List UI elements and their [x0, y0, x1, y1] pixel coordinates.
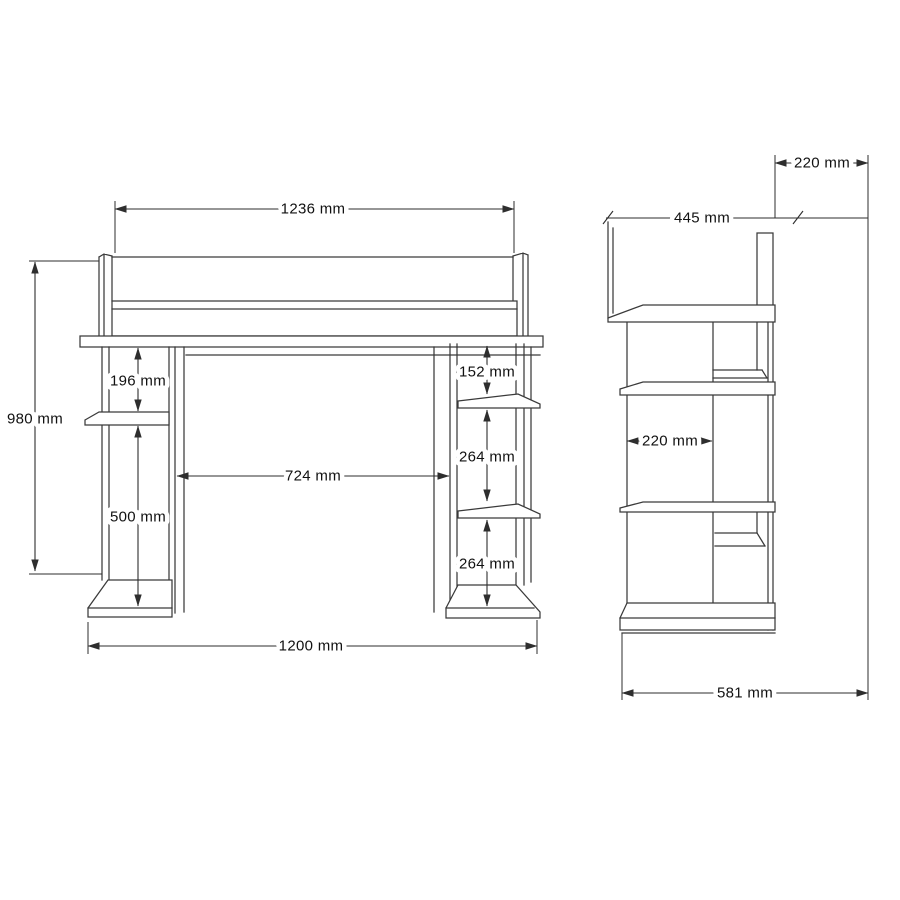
front-right-pedestal-shelf-1: [458, 394, 540, 408]
dim-right-gap-upper: 152 mm: [459, 346, 515, 394]
side-back-compartment-2: [715, 533, 765, 546]
dim-label-right-gap-upper: 152 mm: [459, 364, 515, 381]
dim-label-right-gap-middle: 264 mm: [459, 449, 515, 466]
dim-label-right-gap-lower: 264 mm: [459, 556, 515, 573]
dim-label-top-offset: 220 mm: [794, 155, 850, 172]
front-right-pedestal-panels: [434, 344, 531, 617]
dim-label-left-gap-upper: 196 mm: [110, 373, 166, 390]
side-pedestal-panels: [627, 322, 773, 630]
dim-bottom-depth: 581 mm: [622, 633, 868, 702]
dim-right-gap-middle: 264 mm: [459, 410, 515, 501]
side-view-drawing: [608, 155, 868, 700]
technical-drawing-canvas: 1236 mm 980 mm 196 mm 500 mm 724 mm 152 …: [0, 0, 900, 900]
dim-top-offset: 220 mm: [775, 155, 868, 219]
dim-label-left-gap-lower: 500 mm: [110, 509, 166, 526]
front-right-pedestal-shelf-2: [458, 504, 540, 518]
front-desktop: [80, 336, 543, 347]
side-shelf-2: [620, 502, 775, 512]
dim-left-gap-upper: 196 mm: [110, 348, 166, 411]
front-left-pedestal-base: [88, 580, 172, 617]
front-riser-shelf: [112, 301, 517, 336]
side-desktop: [608, 305, 775, 322]
dim-label-bottom-width: 1200 mm: [279, 638, 344, 655]
side-front-edge-lines: [608, 222, 613, 318]
dim-label-bottom-depth: 581 mm: [717, 685, 773, 702]
front-left-pedestal-shelf: [85, 412, 169, 425]
front-right-pedestal-base: [446, 585, 540, 618]
side-back-compartment-1: [713, 370, 767, 378]
dim-label-overall-height: 980 mm: [7, 411, 63, 428]
dim-top-width: 1236 mm: [115, 201, 514, 254]
dim-inner-depth: 220 mm: [627, 433, 712, 450]
technical-drawing-page: 1236 mm 980 mm 196 mm 500 mm 724 mm 152 …: [0, 0, 900, 900]
dim-label-opening-width: 724 mm: [285, 468, 341, 485]
side-shelf-1: [620, 382, 775, 395]
dim-overall-height: 980 mm: [7, 261, 102, 574]
side-back-panel: [757, 233, 773, 305]
dim-label-inner-depth: 220 mm: [642, 433, 698, 450]
dim-upper-depth: 445 mm: [603, 210, 868, 227]
dim-opening-width: 724 mm: [177, 468, 449, 485]
front-left-post: [99, 254, 112, 336]
dim-bottom-width: 1200 mm: [88, 620, 537, 655]
dim-left-gap-lower: 500 mm: [110, 426, 166, 606]
side-base: [620, 603, 775, 630]
dim-label-top-width: 1236 mm: [281, 201, 346, 218]
dim-label-upper-depth: 445 mm: [674, 210, 730, 227]
